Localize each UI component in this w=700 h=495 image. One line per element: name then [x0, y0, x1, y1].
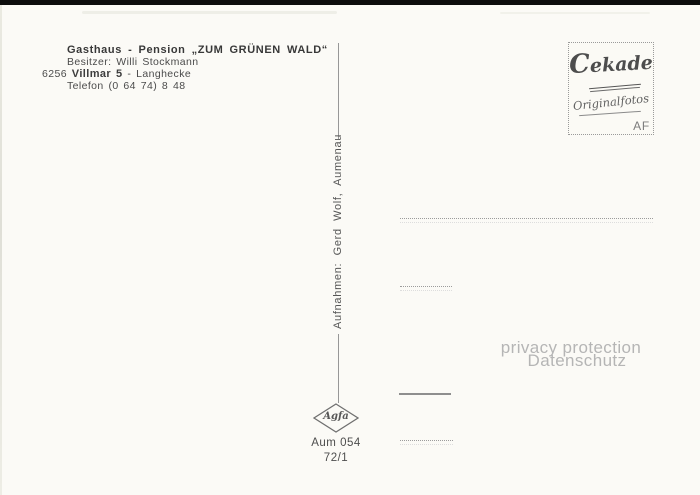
print-code-number: Aum 054: [300, 437, 372, 449]
owner-line: Besitzer: Willi Stockmann: [67, 56, 198, 68]
agfa-logo-text: Agfa: [313, 411, 359, 422]
cekade-logo: Cekade: [568, 49, 653, 79]
af-mark: AF: [633, 119, 650, 133]
town-name: Villmar 5: [72, 68, 123, 80]
agfa-diamond-icon: Agfa: [313, 403, 359, 433]
establishment-name: Gasthaus - Pension „ZUM GRÜNEN WALD“: [67, 44, 328, 56]
originalfotos-flourish: [579, 111, 641, 116]
photographer-credit: Aufnahmen: Gerd Wolf, Aumenau: [331, 147, 345, 329]
print-code-year: 72/1: [300, 452, 372, 464]
phone-line: Telefon (0 64 74) 8 48: [67, 80, 185, 92]
scan-edge-top: [0, 0, 700, 5]
address-dotted-line-short: [400, 440, 453, 445]
address-solid-line: [399, 393, 451, 395]
postcard-back: Gasthaus - Pension „ZUM GRÜNEN WALD“ Bes…: [0, 0, 700, 495]
divider-line-upper: [338, 43, 339, 139]
privacy-watermark-de: Datenschutz: [447, 351, 700, 371]
stamp-frame: Cekade Originalfotos AF: [568, 42, 654, 135]
scan-edge-left: [0, 5, 2, 495]
address-dotted-line-short: [400, 286, 452, 291]
scan-smudge: [500, 12, 650, 14]
postal-code: 6256: [42, 68, 67, 80]
district-name: - Langhecke: [127, 68, 191, 80]
address-dotted-line-long: [400, 218, 653, 223]
divider-line-lower: [338, 334, 339, 403]
address-line: 6256 Villmar 5 - Langhecke: [42, 68, 191, 80]
scan-smudge: [82, 11, 337, 14]
